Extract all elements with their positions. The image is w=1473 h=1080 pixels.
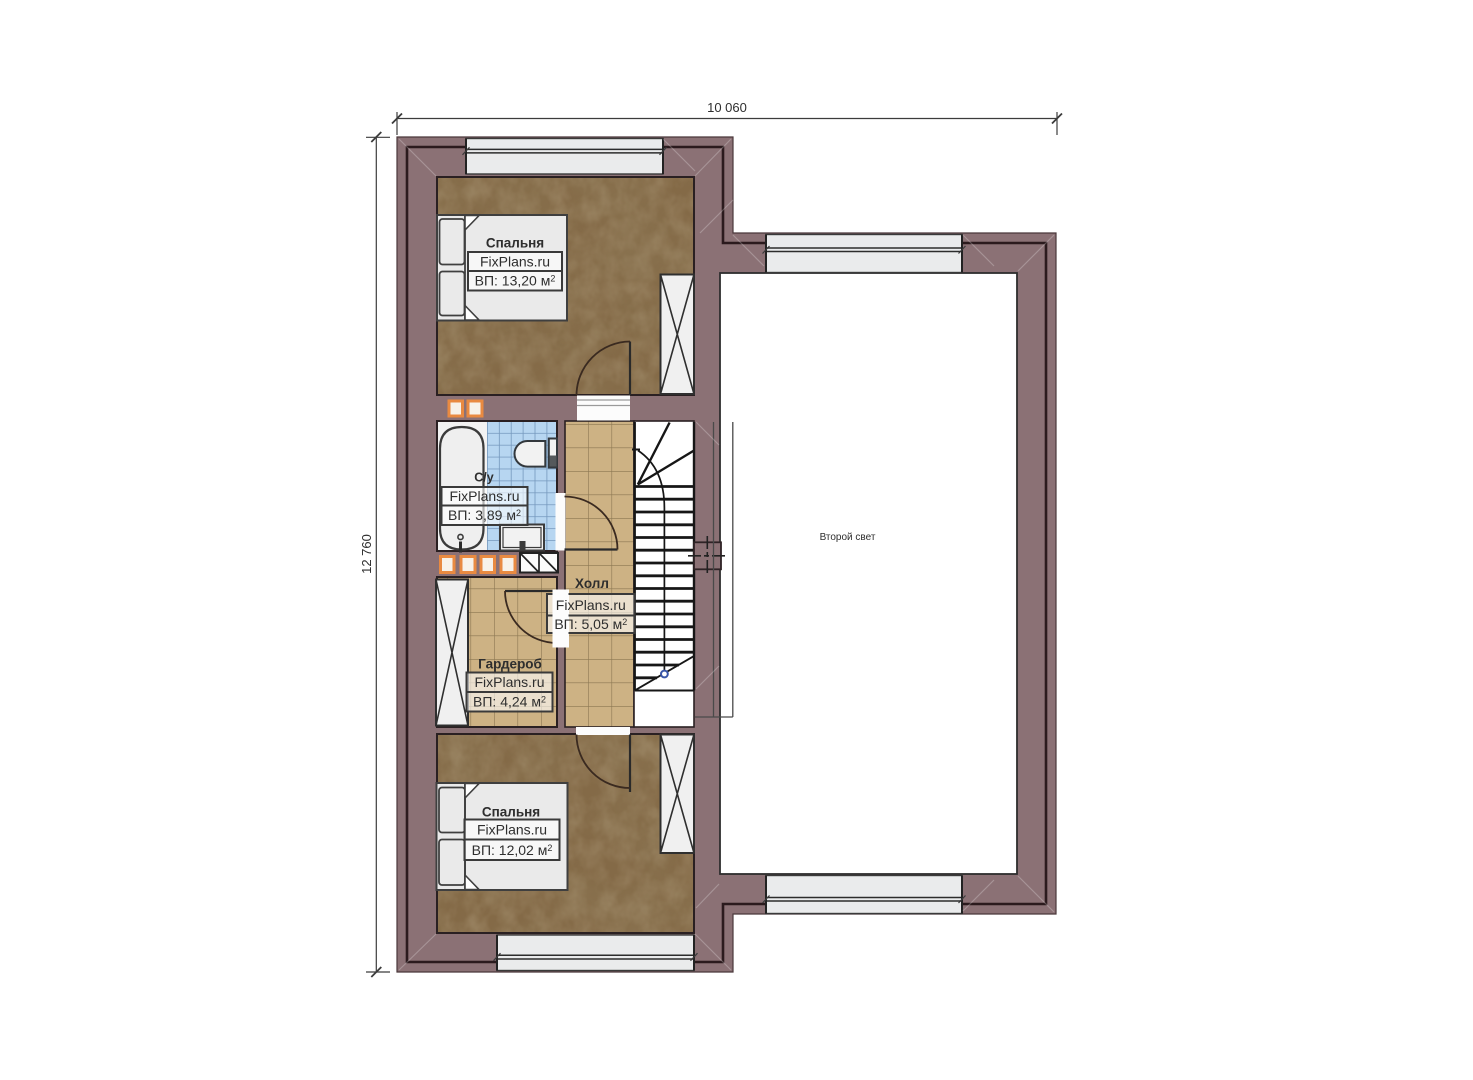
svg-text:Спальня: Спальня: [482, 805, 540, 820]
svg-text:ВП: 4,24 м2: ВП: 4,24 м2: [473, 694, 546, 710]
svg-text:FixPlans.ru: FixPlans.ru: [449, 488, 519, 504]
svg-text:Гардероб: Гардероб: [478, 657, 542, 672]
svg-text:ВП: 5,05 м2: ВП: 5,05 м2: [554, 616, 627, 632]
svg-text:ВП: 12,02 м2: ВП: 12,02 м2: [472, 842, 553, 858]
svg-text:FixPlans.ru: FixPlans.ru: [474, 674, 544, 690]
svg-text:12 760: 12 760: [359, 534, 374, 574]
svg-text:ВП: 3,89 м2: ВП: 3,89 м2: [448, 507, 521, 523]
svg-text:Спальня: Спальня: [486, 236, 544, 251]
svg-text:FixPlans.ru: FixPlans.ru: [477, 822, 547, 838]
svg-text:ВП: 13,20 м2: ВП: 13,20 м2: [475, 273, 556, 289]
svg-text:FixPlans.ru: FixPlans.ru: [480, 254, 550, 270]
svg-text:FixPlans.ru: FixPlans.ru: [556, 597, 626, 613]
svg-text:Холл: Холл: [575, 576, 609, 591]
svg-text:10 060: 10 060: [707, 100, 747, 115]
svg-text:Второй свет: Второй свет: [820, 532, 876, 543]
svg-text:С/у: С/у: [474, 471, 494, 485]
